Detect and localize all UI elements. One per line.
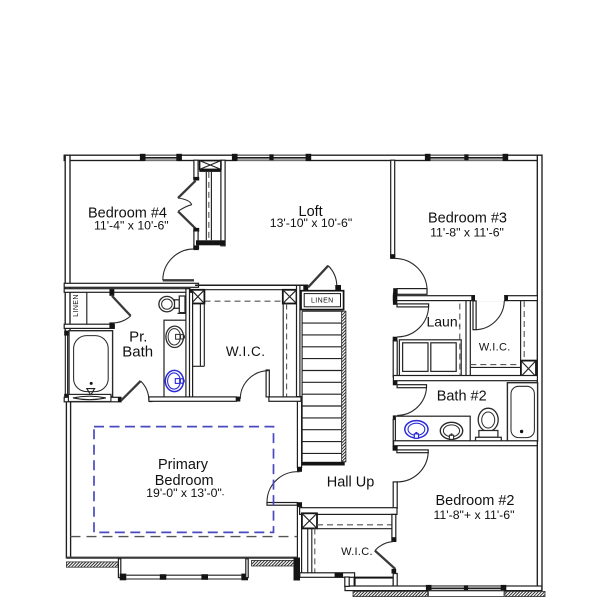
svg-text:11'-8"+ x 11'-6": 11'-8"+ x 11'-6" xyxy=(434,508,515,522)
svg-text:LINEN: LINEN xyxy=(311,298,334,305)
svg-text:Bedroom #3: Bedroom #3 xyxy=(428,211,507,227)
svg-text:11'-8" x 11'-6": 11'-8" x 11'-6" xyxy=(430,226,504,240)
svg-text:Bath #2: Bath #2 xyxy=(437,389,487,405)
svg-text:Laun.: Laun. xyxy=(426,314,461,330)
svg-text:Hall Up: Hall Up xyxy=(327,475,375,491)
svg-text:Primary: Primary xyxy=(158,457,209,473)
svg-text:Bath: Bath xyxy=(122,344,153,361)
svg-text:W.I.C.: W.I.C. xyxy=(479,342,511,354)
svg-text:W.I.C.: W.I.C. xyxy=(226,344,266,359)
svg-text:W.I.C.: W.I.C. xyxy=(341,546,373,558)
svg-text:13'-10" x 10'-6": 13'-10" x 10'-6" xyxy=(270,216,352,230)
svg-text:19'-0" x 13'-0"-: 19'-0" x 13'-0"- xyxy=(146,486,225,500)
svg-text:11'-4" x 10'-6": 11'-4" x 10'-6" xyxy=(94,219,169,233)
svg-text:Bedroom #2: Bedroom #2 xyxy=(436,493,515,509)
svg-text:LINEN: LINEN xyxy=(73,294,80,317)
